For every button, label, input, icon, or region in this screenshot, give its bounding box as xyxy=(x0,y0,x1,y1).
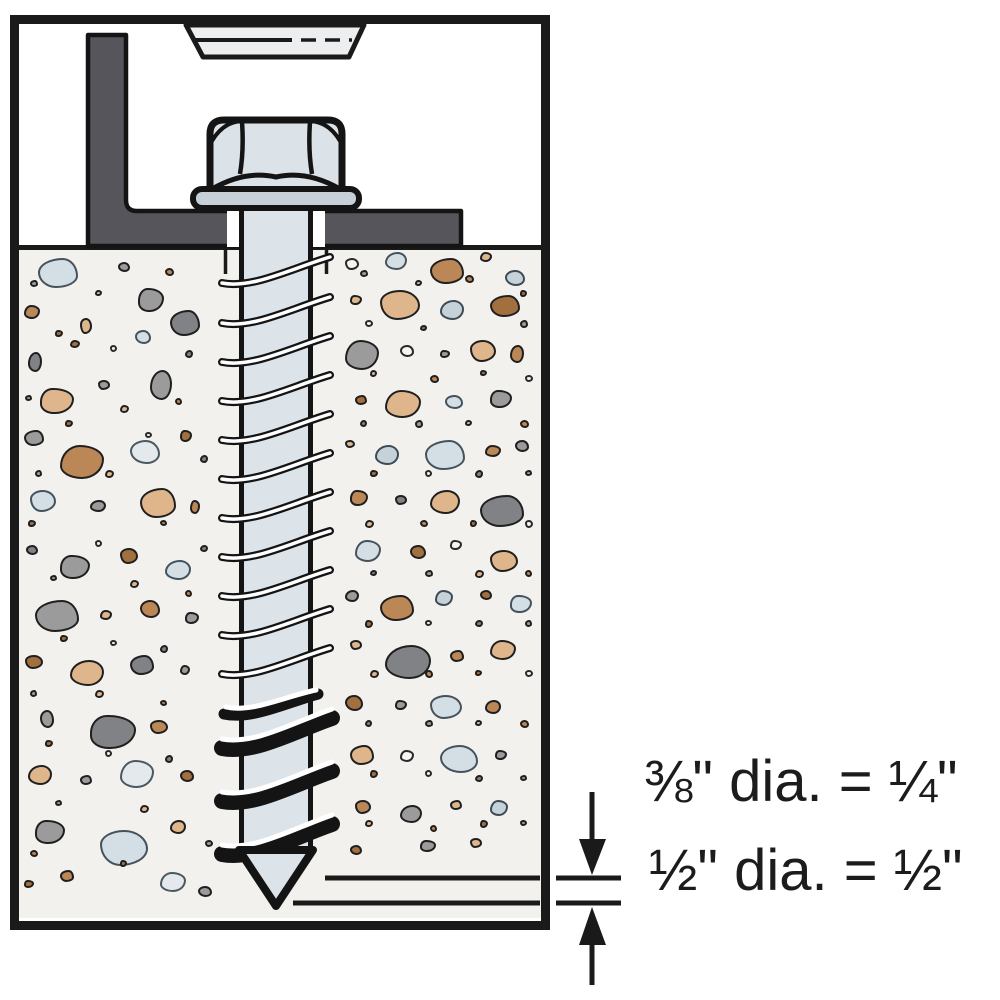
dimension-arrow-down-icon xyxy=(579,839,606,875)
plate-hole-gap-right xyxy=(313,209,325,247)
plate-hole-gap-left xyxy=(227,209,239,247)
dimension-arrows xyxy=(579,792,606,985)
hex-facet-left xyxy=(240,122,243,174)
dimension-arrow-up-icon xyxy=(579,907,606,945)
screw-tip xyxy=(239,850,313,906)
flat-fastener-head xyxy=(186,25,364,57)
anchor-embedment-diagram: ⅜" dia. = ¼" ½" dia. = ½" xyxy=(0,0,1000,1000)
embedment-label-upper: ⅜" dia. = ¼" xyxy=(644,753,958,811)
embedment-label-lower: ½" dia. = ½" xyxy=(649,842,963,900)
flange-washer xyxy=(193,189,359,208)
embedment-lines xyxy=(293,878,621,903)
hex-facet-right xyxy=(309,122,312,174)
hex-head xyxy=(210,120,342,192)
